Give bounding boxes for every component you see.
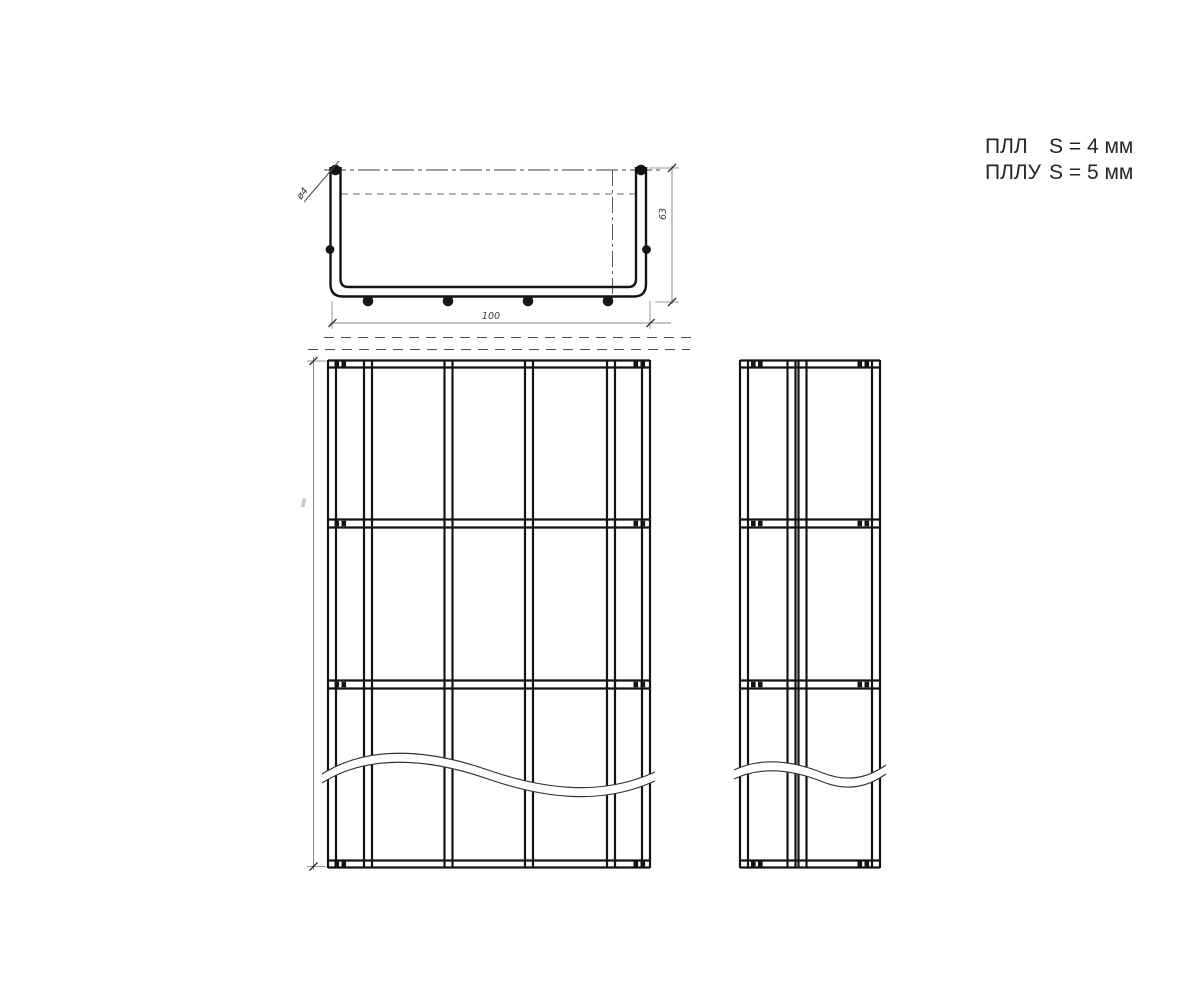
spec-row-pllu: ПЛЛУ S = 5 мм (985, 160, 1133, 186)
height-dimension-label: 63 (658, 208, 669, 220)
faint-dimension-label-mark (301, 498, 306, 508)
weld-end-marks (751, 364, 869, 864)
side-wire-section (326, 245, 335, 254)
extension-line (307, 361, 326, 867)
wire-diameter-label: ø4 (294, 186, 311, 203)
side-wire-section (642, 245, 651, 254)
technical-drawing-canvas: ø4 100 63 (0, 0, 1200, 1000)
side-view-drawing (734, 360, 886, 868)
u-profile-outer (331, 167, 647, 297)
width-dimension: 100 (329, 301, 672, 329)
spec-row-pll: ПЛЛ S = 4 мм (985, 134, 1133, 160)
break-line (734, 762, 886, 787)
rim-wire-section (636, 165, 647, 176)
width-dimension-label: 100 (482, 311, 500, 322)
extension-line (649, 168, 679, 302)
plan-view-drawing (301, 357, 655, 871)
break-mask (734, 762, 886, 787)
spec-wire-thickness: S = 5 мм (1049, 160, 1133, 186)
length-dimension (301, 357, 326, 871)
spec-series-label: ПЛЛ (985, 134, 1049, 160)
spec-series-label: ПЛЛУ (985, 160, 1049, 186)
transverse-wires (740, 361, 880, 868)
height-dimension: 63 (649, 164, 679, 306)
leader-line (304, 161, 339, 202)
spec-note: ПЛЛ S = 4 мм ПЛЛУ S = 5 мм (985, 134, 1133, 186)
spec-wire-thickness: S = 4 мм (1049, 134, 1133, 160)
end-view-drawing: ø4 100 63 (294, 161, 679, 329)
u-profile-inner (341, 167, 637, 287)
longitudinal-wires (740, 360, 880, 868)
